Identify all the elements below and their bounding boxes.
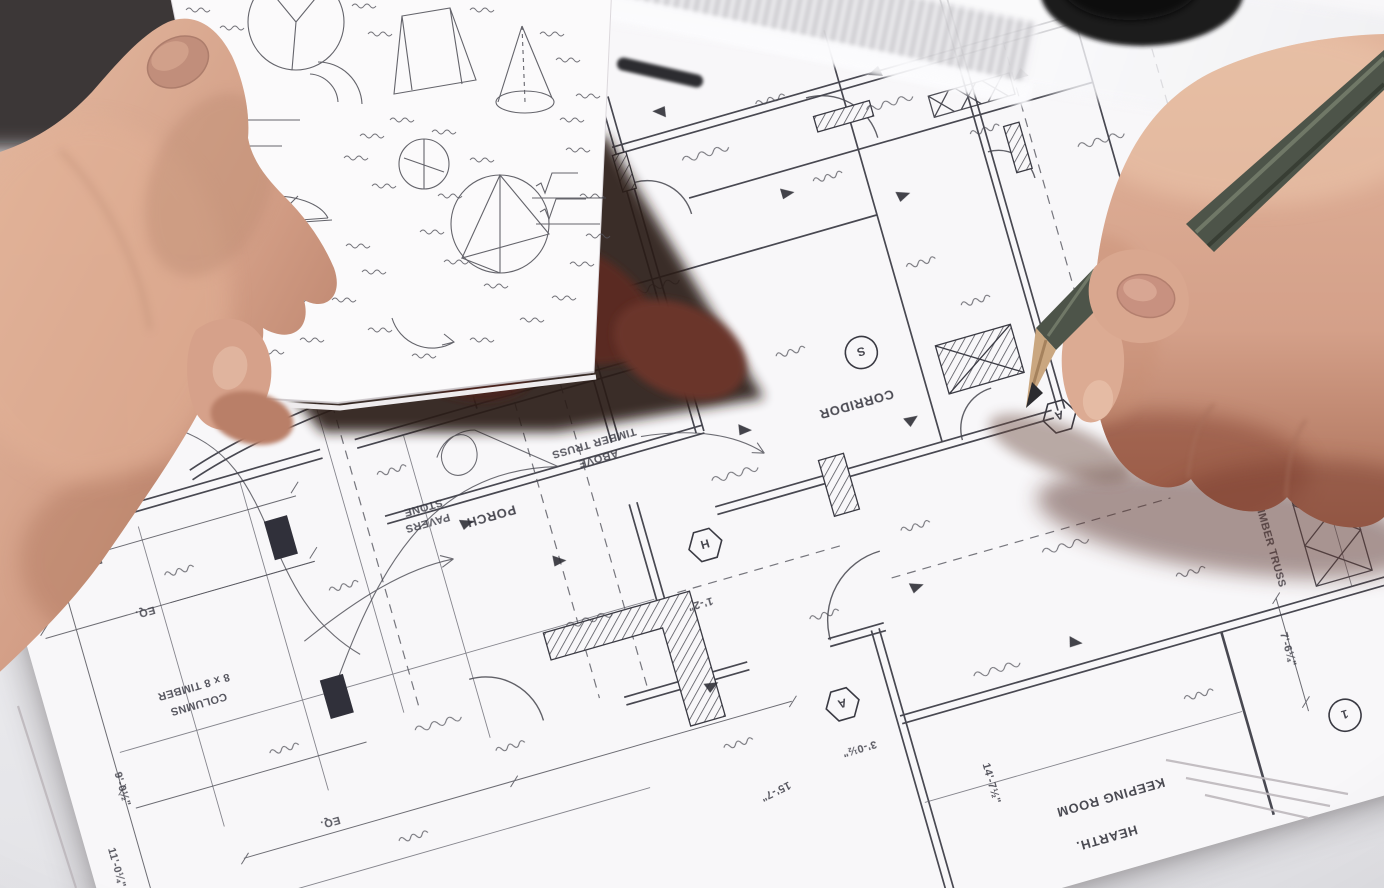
dim-text: 14'-7½" xyxy=(980,762,1003,806)
room-label-corridor: CORRIDOR xyxy=(817,387,895,423)
plan-handwriting-squiggles xyxy=(81,0,1384,888)
dim-eq: EQ. xyxy=(134,603,157,620)
dim-text: 9'-0½" xyxy=(111,771,132,808)
room-label-porch: PORCH xyxy=(465,502,518,530)
plan-text-labels: PORCH CORRIDOR KEEPING ROOM HEARTH. STON… xyxy=(26,241,1343,888)
room-label-keeping-room: KEEPING ROOM xyxy=(1055,775,1167,820)
grid-bubble-label: A xyxy=(836,695,849,711)
dim-text: 3'-0½" xyxy=(841,738,878,759)
dim-text: 11'-0¼" xyxy=(105,846,128,888)
grid-bubble-label: T xyxy=(588,317,600,333)
floor-plan-sheet: H A T S A 1 xyxy=(0,0,1384,888)
dim-text: 7'-6¼" xyxy=(1277,631,1298,668)
dim-text: 15'-7" xyxy=(758,779,792,804)
grid-bubble-label: H xyxy=(699,536,711,552)
grid-bubble-label: A xyxy=(1053,407,1066,423)
plan-hatched-walls xyxy=(193,45,1154,823)
dim-eq: EQ. xyxy=(81,553,104,570)
room-label-hearth: HEARTH. xyxy=(1074,822,1139,854)
dim-eq: EQ. xyxy=(319,814,342,831)
grid-bubble-label: S xyxy=(855,344,867,360)
grid-bubble-label: 1 xyxy=(1339,707,1350,722)
annotation-timber-truss: TIMBER TRUSS xyxy=(1253,502,1289,589)
floor-plan-drawing: H A T S A 1 xyxy=(0,0,1384,888)
photo-scene: H A T S A 1 xyxy=(0,0,1384,888)
plan-grid-bubbles: H A T S A 1 xyxy=(574,138,1365,888)
